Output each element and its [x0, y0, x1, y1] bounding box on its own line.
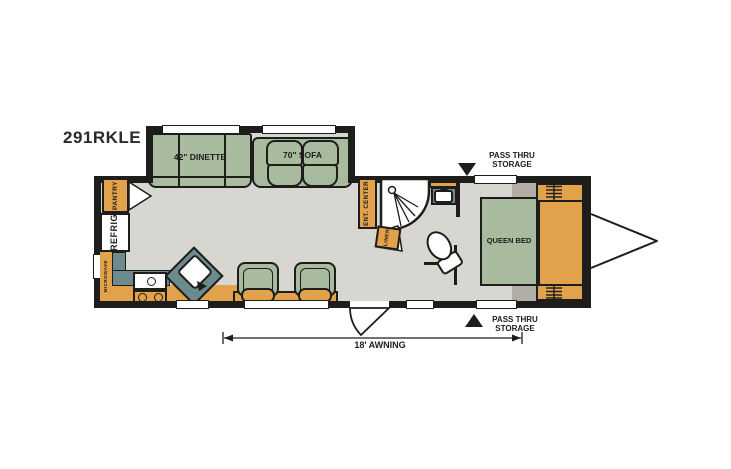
- bath-window: [406, 300, 434, 309]
- ent-center-label: ENT. CENTER: [364, 181, 371, 226]
- kitchen-counter-bottom: [100, 285, 240, 301]
- linen-label: LINEN: [384, 229, 392, 247]
- floorplan: 291RKLE 42" DINETTE 70" SOFA PANTRY REFR…: [0, 0, 731, 469]
- pantry-label: PANTRY: [112, 181, 119, 210]
- linen-closet: LINEN: [375, 225, 402, 250]
- living-window: [244, 300, 329, 309]
- pass-thru-label-top: PASS THRUSTORAGE: [481, 151, 543, 171]
- hitch-frame: [591, 214, 657, 268]
- slideout-wall-right: [348, 126, 355, 183]
- queen-bed-label: QUEEN BED: [487, 237, 532, 245]
- wall-right: [584, 176, 591, 308]
- slideout-window: [262, 125, 336, 134]
- microwave-label: MICROWAVE: [104, 260, 109, 292]
- entry-door-opening: [350, 301, 389, 308]
- toilet-wall-vertical: [454, 245, 457, 285]
- pass-thru-storage-bottom: [512, 285, 536, 301]
- sofa-seat-cushion: [302, 164, 338, 187]
- bed-platform: [538, 200, 584, 286]
- wardrobe-bottom: [536, 284, 584, 301]
- sofa: [252, 137, 353, 188]
- model-title: 291RKLE: [63, 128, 141, 148]
- burner: [147, 277, 156, 286]
- dinette-label: 42" DINETTE: [148, 152, 252, 164]
- sofa-label: 70" SOFA: [256, 150, 349, 162]
- entry-door: [350, 308, 389, 335]
- dimension-arrow-right-icon: [512, 335, 521, 342]
- wall-top-right: [348, 176, 591, 183]
- pass-thru-door-bottom: [476, 300, 517, 309]
- pantry: PANTRY: [102, 178, 129, 213]
- pass-thru-door-top: [474, 175, 517, 184]
- toilet-wall-horizontal: [424, 262, 457, 265]
- queen-bed: QUEEN BED: [480, 197, 538, 286]
- pass-thru-arrow-up-icon: [465, 314, 483, 327]
- bathroom-sink: [434, 190, 453, 203]
- refrigerator: REFRIG: [100, 213, 130, 252]
- dimension-arrow-left-icon: [224, 335, 233, 342]
- entertainment-center: ENT. CENTER: [358, 178, 377, 229]
- pass-thru-label-bottom: PASS THRUSTORAGE: [484, 315, 546, 335]
- slideout-window: [162, 125, 240, 134]
- bath-partition-wall: [456, 183, 460, 217]
- kitchen-window: [176, 300, 209, 309]
- awning-label: 18' AWNING: [330, 340, 430, 351]
- dinette-seat-line: [150, 176, 250, 178]
- sofa-seat-cushion: [267, 164, 303, 187]
- stove-top: [133, 272, 167, 290]
- refrigerator-label: REFRIG: [110, 214, 120, 251]
- microwave-cabinet: MICROWAVE: [100, 252, 112, 301]
